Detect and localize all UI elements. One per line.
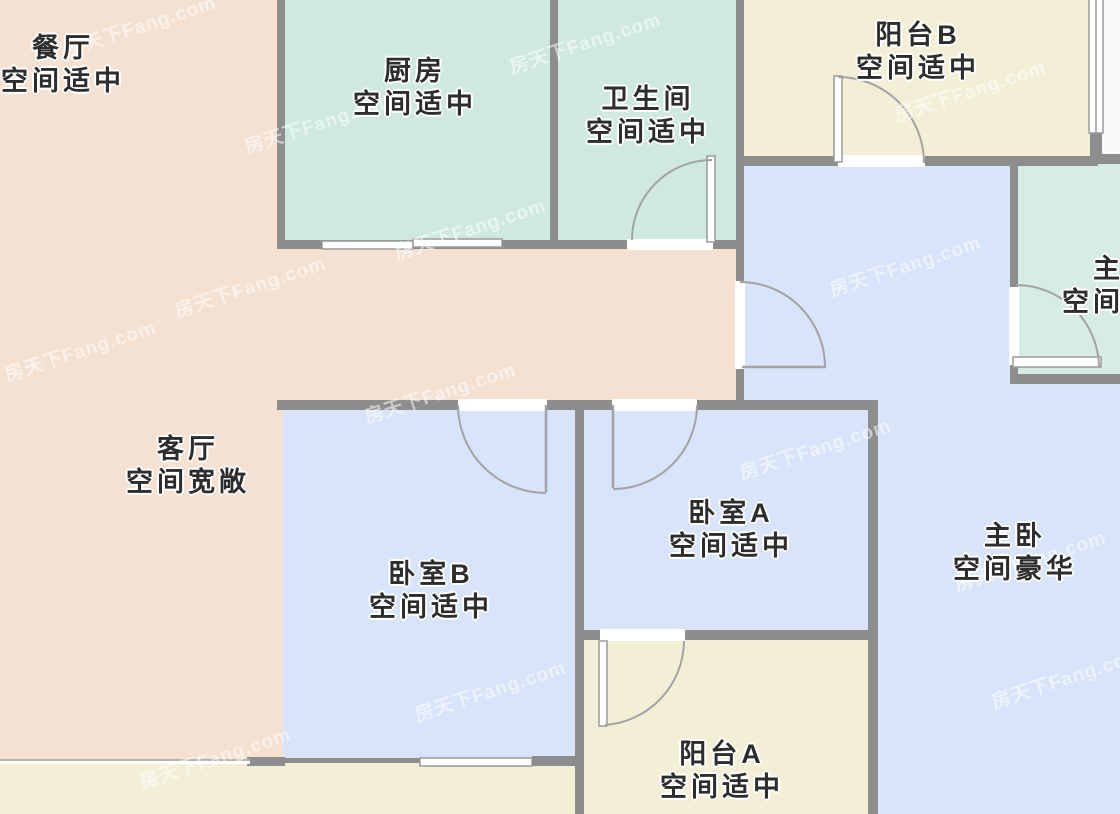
room-name: 阳台B (856, 19, 980, 52)
room-size-desc: 空间宽敞 (126, 466, 250, 499)
room-label-master-bathroom: 主卫 空间适中 (1062, 253, 1120, 319)
bedroom-a-door-arc (613, 405, 697, 489)
room-size-desc: 空间适中 (856, 52, 980, 85)
room-name: 卧室B (369, 558, 493, 591)
bathroom-door-leaf (707, 156, 715, 242)
balcony-a-door-leaf (599, 641, 607, 726)
room-label-balcony-b: 阳台B 空间适中 (856, 19, 980, 85)
balcony-b-door-arc (838, 77, 924, 163)
room-size-desc: 空间适中 (369, 591, 493, 624)
room-name: 主卫 (1062, 253, 1120, 286)
room-label-bathroom: 卫生间 空间适中 (586, 83, 710, 149)
room-size-desc: 空间适中 (1, 65, 125, 98)
room-label-kitchen: 厨房 空间适中 (353, 55, 477, 121)
room-name: 餐厅 (1, 32, 125, 65)
room-label-master-bedroom: 主卧 空间豪华 (953, 520, 1077, 586)
room-label-bedroom-b: 卧室B 空间适中 (369, 558, 493, 624)
bathroom-door-arc (632, 160, 712, 240)
doors-windows-layer (0, 0, 1120, 814)
room-label-bedroom-a: 卧室A 空间适中 (669, 497, 793, 563)
room-name: 卫生间 (586, 83, 710, 116)
room-label-living: 客厅 空间宽敞 (126, 433, 250, 499)
room-name: 厨房 (353, 55, 477, 88)
door-openings (458, 155, 1019, 641)
windows (0, 0, 1103, 766)
room-size-desc: 空间适中 (353, 88, 477, 121)
door-arcs (458, 77, 1099, 725)
room-name: 主卧 (953, 520, 1077, 553)
floor-plan: 餐厅 空间适中 厨房 空间适中 卫生间 空间适中 阳台B 空间适中 客厅 空间宽… (0, 0, 1120, 814)
room-label-balcony-a: 阳台A 空间适中 (660, 738, 784, 804)
room-name: 阳台A (660, 738, 784, 771)
bedroom-b-door-arc (458, 405, 546, 493)
room-label-dining: 餐厅 空间适中 (1, 32, 125, 98)
room-size-desc: 空间豪华 (953, 553, 1077, 586)
room-name: 卧室A (669, 497, 793, 530)
room-size-desc: 空间适中 (660, 771, 784, 804)
room-size-desc: 空间适中 (669, 530, 793, 563)
room-size-desc: 空间适中 (586, 116, 710, 149)
balcony-b-door-leaf (834, 76, 842, 162)
room-name: 客厅 (126, 433, 250, 466)
room-size-desc: 空间适中 (1062, 286, 1120, 319)
master-bathroom-door-leaf (1013, 357, 1101, 367)
suite-door-arc (740, 282, 825, 367)
balcony-a-door-arc (605, 641, 684, 725)
